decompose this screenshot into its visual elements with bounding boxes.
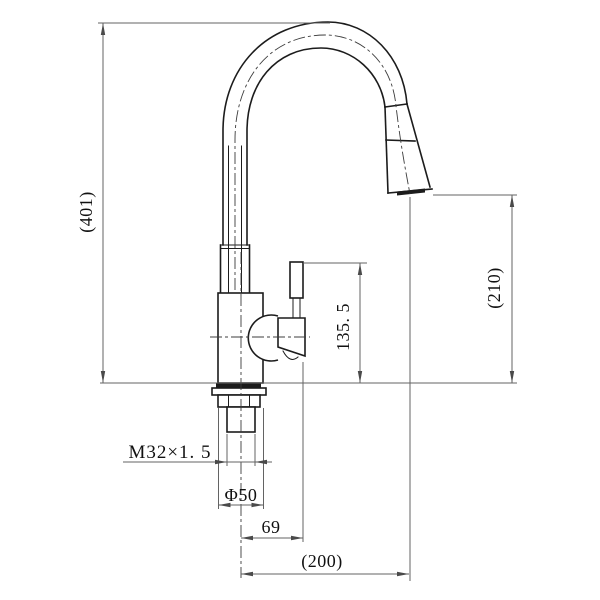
arrowhead-200-left	[241, 572, 253, 576]
spout-center-line	[235, 35, 410, 290]
sprayer-left-edge	[385, 107, 388, 193]
dimension-spout-reach: (200)	[241, 551, 409, 576]
spout-outer-curve	[223, 22, 407, 245]
dim-label-handle-height: 135. 5	[333, 303, 353, 351]
dim-label-handle-reach: 69	[262, 517, 281, 537]
arrowhead-m32-right	[255, 460, 267, 464]
sprayer-right-edge	[407, 104, 430, 187]
dim-label-thread-spec: M32×1. 5	[128, 442, 211, 463]
dimension-handle-reach: 69	[241, 517, 303, 540]
arrowhead-401-top	[101, 23, 105, 35]
dimension-overall-height: (401)	[76, 23, 105, 383]
dimension-spout-clearance: (210)	[484, 195, 514, 383]
faucet-outline	[212, 22, 432, 432]
technical-drawing-canvas: (401) 135. 5 (210) M32×1. 5 Φ50 69 (200)	[0, 0, 600, 600]
arrowhead-69-right	[291, 536, 303, 540]
dim-label-spout-reach: (200)	[301, 551, 343, 572]
arrowhead-210-bottom	[510, 371, 514, 383]
dimension-thread-spec: M32×1. 5	[123, 442, 272, 464]
arrowhead-401-bottom	[101, 371, 105, 383]
arrowhead-135-top	[358, 263, 362, 275]
spout-inner-curve	[247, 48, 385, 245]
arrowhead-69-left	[241, 536, 253, 540]
sprayer-head	[385, 104, 432, 196]
base-flange	[212, 388, 266, 395]
dimension-handle-height: 135. 5	[333, 263, 362, 383]
extension-lines	[98, 23, 517, 581]
handle-lever	[290, 262, 303, 298]
dim-label-spout-clearance: (210)	[484, 267, 505, 309]
arrowhead-m32-left	[215, 460, 227, 464]
arrowhead-200-right	[397, 572, 409, 576]
dim-label-overall-height: (401)	[76, 191, 97, 233]
sprayer-aerator-face	[397, 189, 425, 196]
arrowhead-210-top	[510, 195, 514, 207]
mounting-base	[212, 384, 266, 433]
mounting-nut	[218, 395, 260, 407]
dim-label-base-diameter: Φ50	[225, 485, 258, 505]
dimension-base-diameter: Φ50	[219, 485, 264, 507]
technical-drawing-page: (401) 135. 5 (210) M32×1. 5 Φ50 69 (200)	[0, 0, 600, 600]
arrowhead-135-bottom	[358, 371, 362, 383]
